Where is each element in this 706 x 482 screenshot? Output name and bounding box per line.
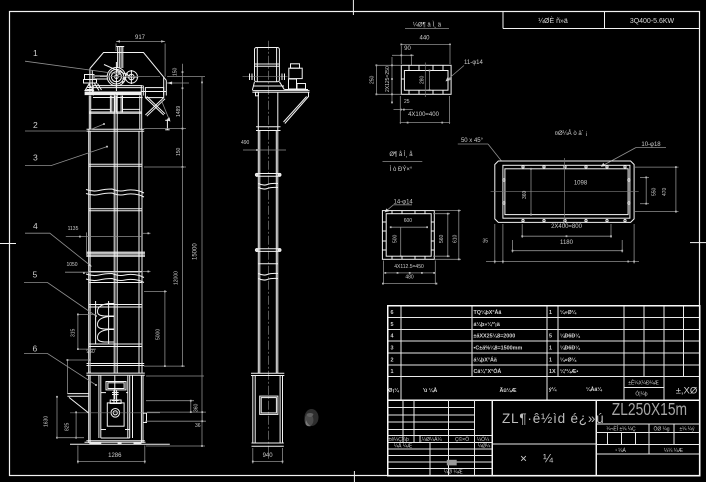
svg-text:4X100=400: 4X100=400	[408, 112, 440, 118]
svg-text:610: 610	[453, 234, 459, 243]
svg-text:360: 360	[522, 190, 528, 199]
svg-text:¤Ø¼Å ò ä´ ¡: ¤Ø¼Å ò ä´ ¡	[555, 130, 588, 137]
svg-text:550: 550	[652, 187, 658, 196]
svg-text:2: 2	[33, 120, 38, 130]
svg-text:4: 4	[391, 334, 394, 340]
svg-text:¹ ¼Á: ¹ ¼Á	[615, 447, 626, 454]
svg-text:¼Ð6Ð¼: ¼Ð6Ð¼	[560, 333, 580, 340]
svg-text:Ç©×Ö: Ç©×Ö	[455, 436, 469, 443]
svg-text:¼¬ÈÎ ±¼ ¼Ç: ¼¬ÈÎ ±¼ ¼Ç	[606, 426, 636, 433]
svg-text:1135: 1135	[68, 226, 79, 232]
svg-text:á¼þX°Áä: á¼þX°Áä	[474, 356, 498, 363]
svg-text:1: 1	[549, 357, 552, 363]
svg-text:±,XØ: ±,XØ	[676, 386, 698, 397]
svg-text:±ê¼Ç¼þ: ±ê¼Ç¼þ	[389, 437, 409, 443]
svg-text:1X: 1X	[549, 369, 556, 375]
svg-text:6: 6	[391, 310, 394, 316]
svg-text:50 x 45°: 50 x 45°	[461, 138, 484, 144]
svg-text:Ãû¼Æ: Ãû¼Æ	[499, 387, 517, 394]
svg-text:150: 150	[176, 147, 182, 156]
svg-text:12000: 12000	[174, 271, 180, 285]
svg-text:1489: 1489	[176, 106, 182, 117]
svg-text:6: 6	[33, 344, 38, 354]
svg-text:1630: 1630	[44, 416, 50, 427]
svg-text:90: 90	[404, 46, 411, 52]
svg-text:3: 3	[33, 153, 38, 163]
svg-text:1050: 1050	[66, 262, 77, 268]
svg-text:1: 1	[33, 48, 38, 58]
svg-text:36: 36	[195, 423, 201, 429]
svg-text:11-φ14: 11-φ14	[464, 60, 483, 66]
svg-text:1: 1	[391, 369, 394, 375]
svg-text:35: 35	[483, 239, 489, 245]
svg-text:ý¼: ý¼	[549, 386, 557, 393]
svg-text:2: 2	[391, 357, 394, 363]
svg-text:500: 500	[393, 234, 399, 243]
svg-text:360: 360	[194, 403, 200, 412]
svg-text:1: 1	[549, 310, 552, 316]
svg-text:¼ª¼Æ•: ¼ª¼Æ•	[560, 368, 578, 375]
svg-text:5000: 5000	[156, 329, 162, 340]
svg-text:¼¼ ¼Æ: ¼¼ ¼Æ	[664, 448, 683, 454]
svg-text:3: 3	[391, 346, 394, 352]
svg-text:1180: 1180	[560, 240, 574, 246]
svg-text:2X125=250: 2X125=250	[385, 66, 391, 92]
svg-text:ÖØ ¼g: ÖØ ¼g	[653, 426, 669, 433]
svg-text:¼ØÈ ñ»ä: ¼ØÈ ñ»ä	[538, 16, 568, 25]
svg-text:2X400=800: 2X400=800	[551, 224, 583, 230]
svg-text:¼Å ¼Æ: ¼Å ¼Æ	[394, 443, 412, 450]
svg-text:±¼ ¼ý: ±¼ ¼ý	[680, 427, 695, 433]
svg-text:490: 490	[241, 140, 250, 146]
svg-text:¼»Ø¼: ¼»Ø¼	[560, 356, 577, 363]
svg-text:25: 25	[404, 99, 410, 105]
svg-text:940: 940	[263, 453, 274, 459]
svg-text:ZL¶·ê½ìd é¿»ú: ZL¶·ê½ìd é¿»ú	[502, 411, 604, 426]
svg-text:15000: 15000	[193, 243, 199, 260]
svg-text:¼Ð6Ð¼: ¼Ð6Ð¼	[560, 345, 580, 352]
svg-text:560: 560	[439, 234, 445, 243]
svg-text:3Q400-5.6KW: 3Q400-5.6KW	[630, 18, 675, 25]
svg-text:600: 600	[404, 218, 413, 224]
svg-text:¼Àá¼: ¼Àá¼	[586, 386, 602, 393]
svg-text:250: 250	[370, 75, 376, 84]
svg-text:1: 1	[549, 346, 552, 352]
svg-text:¼Ó¼: ¼Ó¼	[477, 436, 490, 443]
svg-text:5: 5	[33, 270, 38, 280]
svg-text:×¼: ×¼	[520, 452, 569, 466]
svg-text:,¼Ø¼Á¼: ,¼Ø¼Á¼	[421, 436, 443, 443]
svg-text:315: 315	[71, 328, 77, 337]
svg-text:•C±ä%¼8=1500mm: •C±ä%¼8=1500mm	[474, 345, 523, 352]
svg-text:'ú ¼Å: 'ú ¼Å	[423, 387, 438, 394]
svg-text:150: 150	[173, 67, 179, 76]
svg-text:Ó¦¼þ: Ó¦¼þ	[635, 391, 647, 398]
svg-text:480: 480	[405, 275, 414, 281]
svg-text:Ì ò ÐÝ×°: Ì ò ÐÝ×°	[390, 166, 413, 173]
svg-text:917: 917	[135, 35, 146, 41]
svg-text:5: 5	[549, 334, 552, 340]
svg-text:ZL250X15m: ZL250X15m	[612, 401, 687, 420]
svg-text:825: 825	[65, 422, 71, 431]
svg-text:¼Ø¶ ä Ì¸ ä: ¼Ø¶ ä Ì¸ ä	[413, 22, 442, 29]
svg-text:¼»Ø¼: ¼»Ø¼	[560, 309, 577, 316]
svg-text:¼Ø ¼Æ: ¼Ø ¼Æ	[444, 470, 463, 476]
svg-text:4X112.5=450: 4X112.5=450	[394, 264, 424, 270]
svg-text:Ø¡¼: Ø¡¼	[388, 387, 399, 394]
svg-text:Ø¶ å Ì¸ å: Ø¶ å Ì¸ å	[389, 151, 413, 158]
svg-text:¼Ø¼: ¼Ø¼	[478, 444, 491, 450]
svg-text:5: 5	[391, 322, 394, 328]
svg-text:280: 280	[420, 75, 426, 84]
svg-text:±äXX25¼8=2000: ±äXX25¼8=2000	[474, 333, 516, 340]
svg-text:440: 440	[419, 36, 430, 42]
svg-text:470: 470	[662, 187, 668, 196]
svg-text:á¼þ»¼ª'¡ä: á¼þ»¼ª'¡ä	[474, 321, 501, 328]
svg-text:Cä¼"X°ÓÁ: Cä¼"X°ÓÁ	[474, 367, 502, 375]
svg-text:TQ¼þX°Áä: TQ¼þX°Áä	[474, 309, 503, 316]
svg-text:4: 4	[33, 221, 38, 231]
svg-text:1098: 1098	[574, 181, 588, 187]
svg-text:1286: 1286	[108, 453, 122, 459]
svg-text:960: 960	[86, 349, 95, 355]
svg-text:±Ê¼X¼Ð¼Æ: ±Ê¼X¼Ð¼Æ	[628, 379, 659, 387]
